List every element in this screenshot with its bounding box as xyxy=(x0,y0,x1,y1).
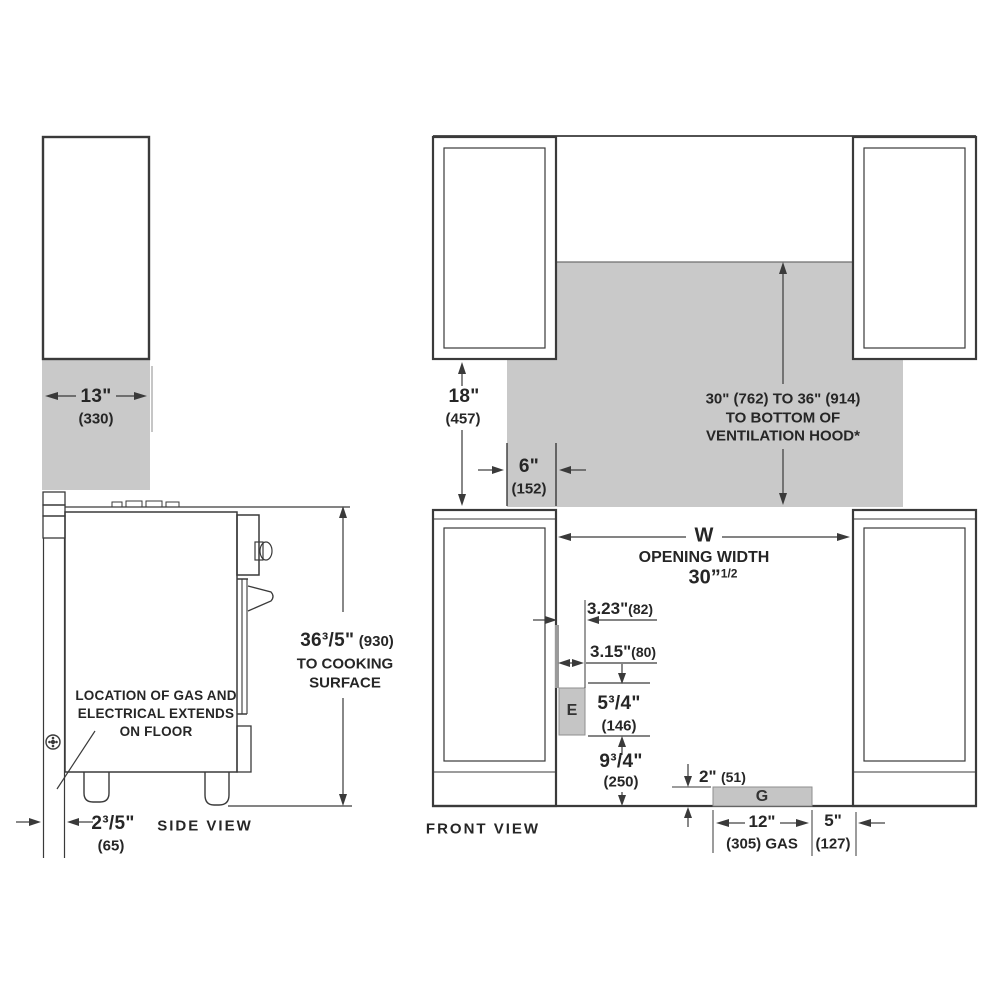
dim-18in-value: 18" xyxy=(448,386,479,408)
arrow-right-icon xyxy=(29,818,41,826)
dim-2in: 2" (51) xyxy=(699,767,746,787)
base-cabinet-right-panel xyxy=(864,528,965,761)
hood-clearance-line3: VENTILATION HOOD* xyxy=(706,428,860,445)
opening-width-label: OPENING WIDTH xyxy=(639,549,770,567)
upper-cabinet-right-panel xyxy=(864,148,965,348)
arrow-down-icon xyxy=(618,795,626,806)
arrow-right-icon xyxy=(572,659,584,667)
burner-grate xyxy=(112,502,122,507)
gas-electrical-note: LOCATION OF GAS AND ELECTRICAL EXTENDS O… xyxy=(75,687,236,741)
range-leg xyxy=(205,772,229,805)
gas-note-line3: ON FLOOR xyxy=(75,723,236,741)
gas-symbol-icon xyxy=(52,745,55,748)
gas-note-line2: ELECTRICAL EXTENDS xyxy=(75,705,236,723)
dim-323-value: 3.23" xyxy=(587,599,628,618)
dim-534-mm: (146) xyxy=(601,718,636,735)
dim-315: 3.15"(80) xyxy=(590,642,656,662)
arrow-down-icon xyxy=(339,794,347,806)
dim-2in-value: 2" xyxy=(699,767,717,786)
upper-cabinet-left-panel xyxy=(444,148,545,348)
dim-934-value: 9³/4" xyxy=(599,751,642,773)
gas-symbol-icon xyxy=(51,740,55,744)
opening-width-value: 30”1/2 xyxy=(689,566,738,589)
range-leg xyxy=(84,772,109,802)
dim-323: 3.23"(82) xyxy=(587,599,653,619)
dim-36in-value: 36³/5" xyxy=(300,630,354,651)
side-view-drawing xyxy=(43,137,350,858)
kick-panel xyxy=(237,726,251,772)
opening-width-fraction: 1/2 xyxy=(721,566,738,580)
gas-symbol-icon xyxy=(55,741,58,744)
dim-5in-value: 5" xyxy=(824,811,842,831)
electrical-box-label: E xyxy=(567,702,578,720)
dim-315-value: 3.15" xyxy=(590,642,631,661)
dim-12in-mm: (305) GAS xyxy=(726,836,798,853)
upper-cabinet-left xyxy=(433,137,556,359)
arrow-left-icon xyxy=(67,818,79,826)
burner-grate xyxy=(126,501,142,507)
hood-zone-upper xyxy=(557,262,852,360)
dim-6in-value: 6" xyxy=(519,456,539,478)
burner-grate xyxy=(166,502,179,507)
side-view-label: SIDE VIEW xyxy=(157,818,253,835)
upper-cabinet-right xyxy=(853,137,976,359)
installation-diagram: 13" (330) LOCATION OF GAS AND ELECTRICAL… xyxy=(0,0,1000,1000)
arrow-right-icon xyxy=(492,466,504,474)
control-knob xyxy=(260,542,272,560)
back-trim-box xyxy=(43,516,65,538)
dim-6in-mm: (152) xyxy=(511,481,546,498)
arrow-left-icon xyxy=(858,819,871,827)
dim-2-3-5-mm: (65) xyxy=(98,838,125,855)
dim-36in: 36³/5" (930) xyxy=(300,630,394,652)
gas-box-label: G xyxy=(756,788,768,806)
burner-grate xyxy=(146,501,162,507)
front-view-label: FRONT VIEW xyxy=(426,821,540,838)
opening-width-number: 30” xyxy=(689,567,721,589)
dim-534-value: 5³/4" xyxy=(597,693,640,715)
arrow-right-icon xyxy=(796,819,809,827)
opening-width-symbol: W xyxy=(695,525,714,548)
arrow-left-icon xyxy=(558,659,570,667)
base-cabinet-left-panel xyxy=(444,528,545,761)
hood-clearance-line2: TO BOTTOM OF xyxy=(726,410,840,427)
dim-18in-mm: (457) xyxy=(445,411,480,428)
dim-36in-note1: TO COOKING xyxy=(297,656,393,673)
arrow-up-icon xyxy=(618,736,626,747)
dim-2-3-5-value: 2³/5" xyxy=(91,813,134,835)
dim-5in-mm: (127) xyxy=(815,836,850,853)
arrow-left-icon xyxy=(716,819,729,827)
electrical-conduit-mark xyxy=(555,625,559,688)
arrow-down-icon xyxy=(458,494,466,506)
arrow-up-icon xyxy=(684,807,692,818)
arrow-up-icon xyxy=(339,506,347,518)
control-panel xyxy=(237,515,259,575)
dim-12in-value: 12" xyxy=(749,812,776,832)
dim-13in-mm: (330) xyxy=(78,411,113,428)
gas-symbol-icon xyxy=(48,741,51,744)
gas-note-line1: LOCATION OF GAS AND xyxy=(75,687,236,705)
hood-clearance-line1: 30" (762) TO 36" (914) xyxy=(706,391,861,408)
arrow-down-icon xyxy=(684,776,692,787)
door-handle xyxy=(248,586,273,611)
arrow-right-icon xyxy=(837,533,850,541)
gas-symbol-icon xyxy=(52,737,55,740)
dim-36in-mm: (930) xyxy=(359,633,394,650)
clearance-zones xyxy=(42,262,903,507)
back-trim-box xyxy=(43,505,65,516)
arrow-left-icon xyxy=(558,533,571,541)
arrow-down-icon xyxy=(618,673,626,684)
dim-2in-mm: (51) xyxy=(721,769,746,785)
dim-934-mm: (250) xyxy=(603,774,638,791)
dim-323-mm: (82) xyxy=(628,601,653,617)
tall-cabinet xyxy=(43,137,149,359)
dim-13in-value: 13" xyxy=(80,386,111,408)
arrow-up-icon xyxy=(458,362,466,374)
dim-36in-note2: SURFACE xyxy=(309,675,381,692)
back-trim-box xyxy=(43,492,65,505)
dim-315-mm: (80) xyxy=(631,644,656,660)
